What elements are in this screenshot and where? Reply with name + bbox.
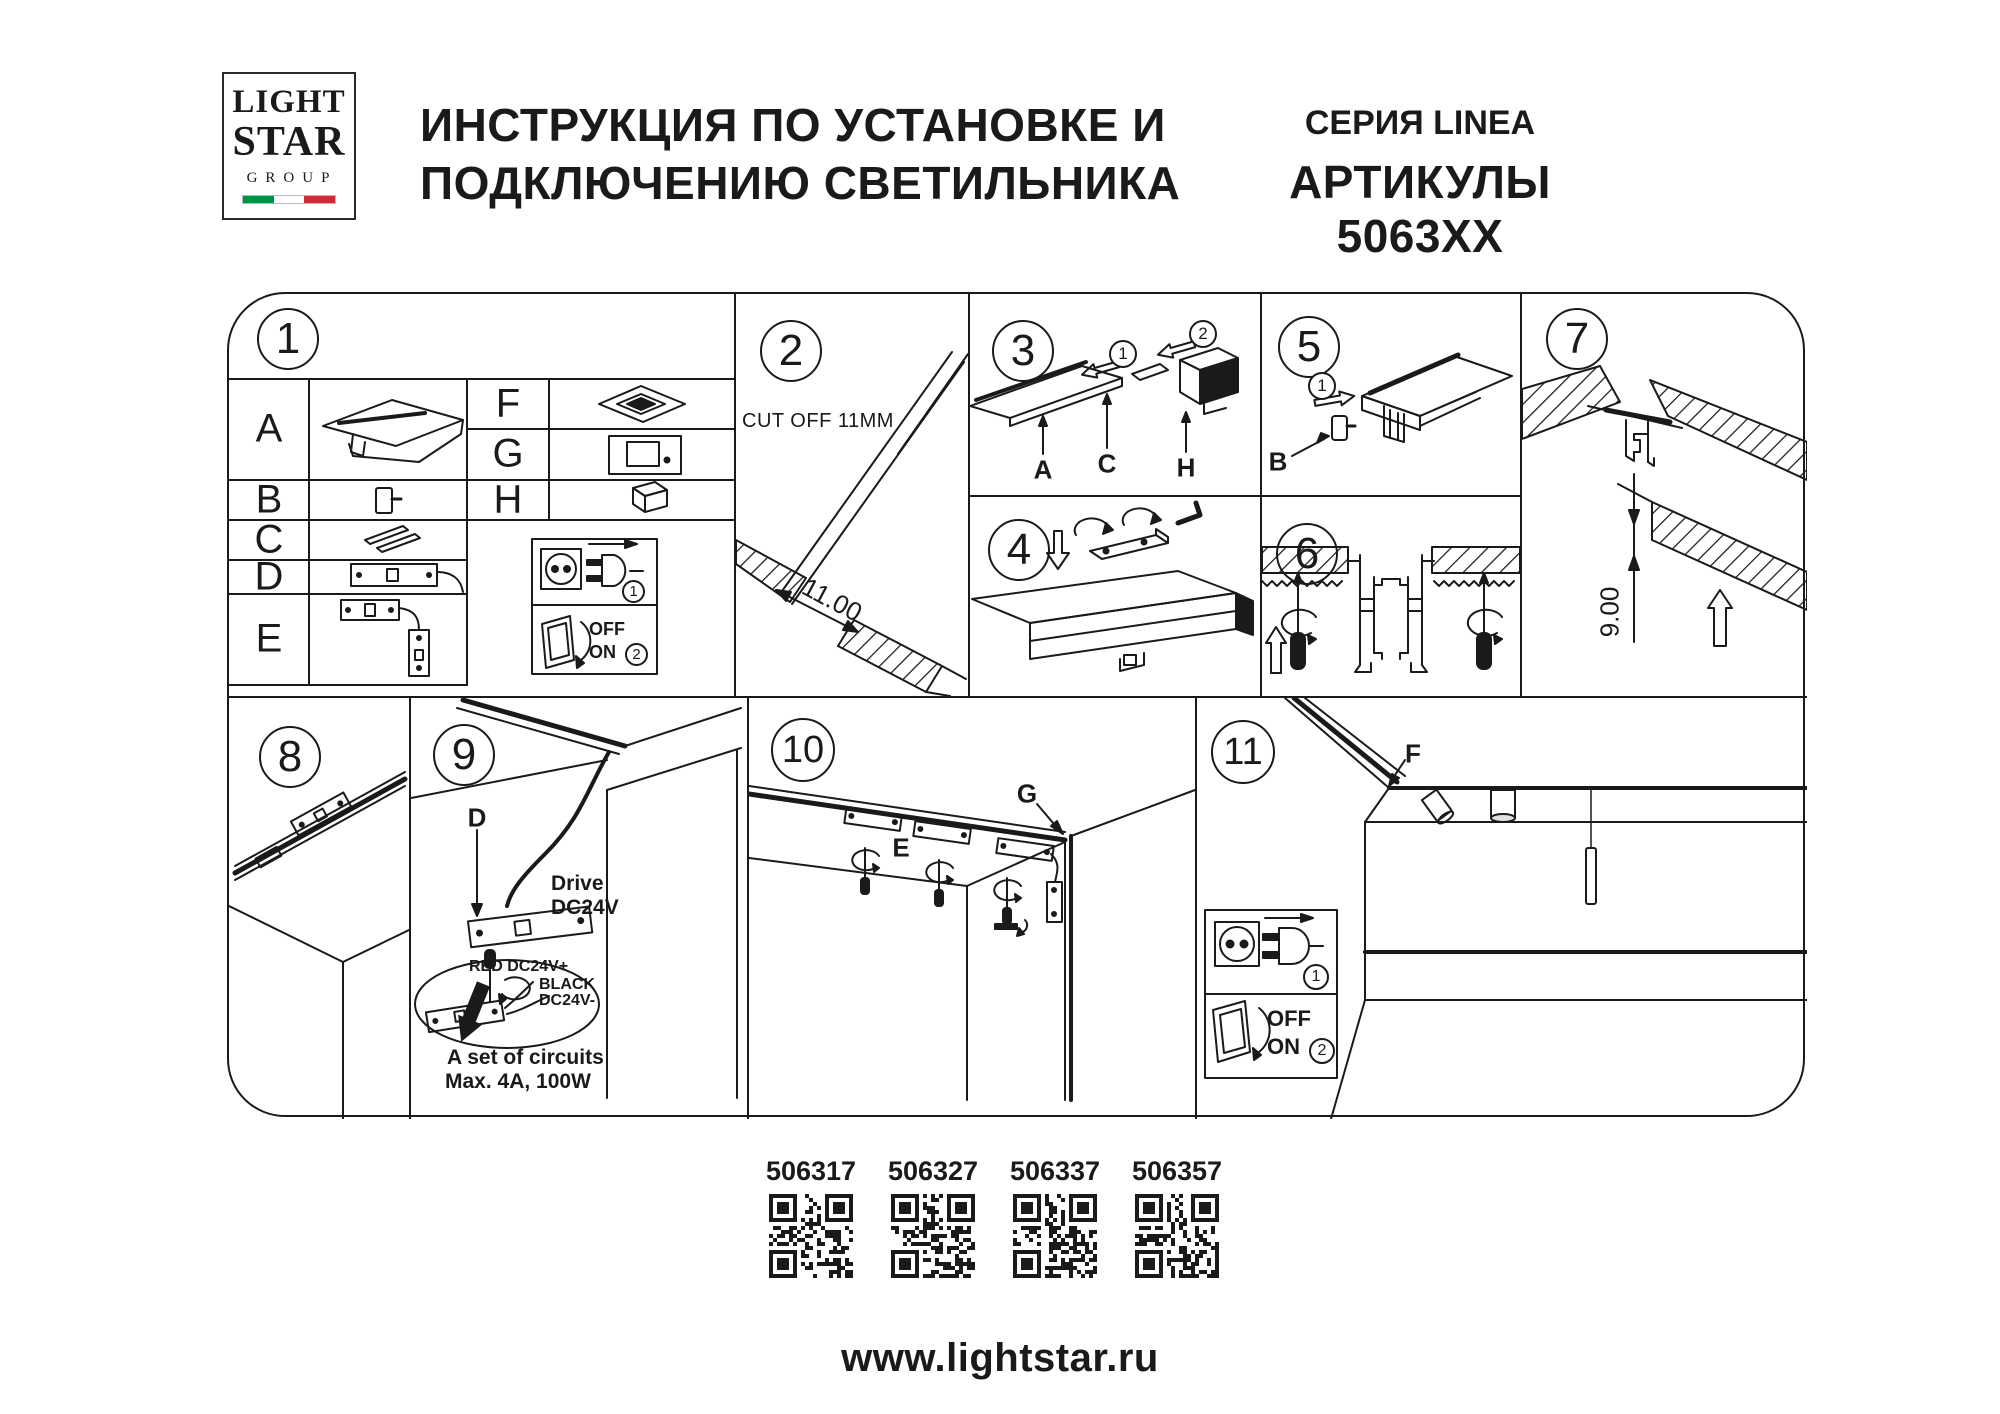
- profile-section-illustration: [1262, 497, 1520, 696]
- circuits-note-line2: Max. 4A, 100W: [445, 1070, 591, 1094]
- step-panel-1: 1: [229, 294, 734, 696]
- series-name: СЕРИЯ LINEA: [1234, 104, 1606, 143]
- qr-code: [1013, 1194, 1097, 1278]
- step-panel-8: 8: [229, 698, 409, 1119]
- step-panel-6: 6: [1262, 497, 1520, 696]
- article-code: 506337: [999, 1156, 1111, 1187]
- part-letter-g: G: [492, 432, 523, 477]
- driver-label-line1: Drive: [551, 872, 604, 896]
- part-label-a: A: [1034, 455, 1053, 486]
- logo-word-star: STAR: [224, 121, 354, 163]
- circuits-note-line1: A set of circuits: [447, 1046, 604, 1070]
- lightstar-logo: LIGHT STAR GROUP: [222, 72, 356, 220]
- logo-word-group: GROUP: [224, 171, 354, 186]
- on-label: ON: [1267, 1036, 1300, 1058]
- cut-off-note: CUT OFF 11MM: [742, 410, 894, 433]
- article-item: 506317: [755, 1156, 867, 1278]
- parts-table-illustration: [229, 294, 734, 696]
- part-letter-b: B: [256, 478, 283, 523]
- qr-code: [891, 1194, 975, 1278]
- step-panel-2: 2 CUT OFF 11MM 11.00: [736, 294, 968, 696]
- article-code: 506357: [1121, 1156, 1233, 1187]
- mounted-profile-illustration: [229, 698, 409, 1119]
- qr-code: [1135, 1194, 1219, 1278]
- part-label-h: H: [1177, 453, 1196, 484]
- off-label: OFF: [589, 620, 625, 638]
- step-panel-5: 5 1 B: [1262, 294, 1520, 495]
- step-panel-3: 3 1 2 A C H: [970, 294, 1260, 495]
- part-letter-h: H: [494, 478, 523, 523]
- step-badge-1: 1: [1308, 372, 1336, 400]
- page-title: ИНСТРУКЦИЯ ПО УСТАНОВКЕ И ПОДКЛЮЧЕНИЮ СВ…: [420, 96, 1180, 212]
- wire-red-label: RED DC24V+: [469, 958, 568, 976]
- part-label-b: B: [1269, 447, 1288, 478]
- part-label-g: G: [1017, 779, 1037, 810]
- step-badge-switch: 2: [1309, 1038, 1335, 1064]
- part-letter-a: A: [256, 407, 283, 452]
- article-code: 506327: [877, 1156, 989, 1187]
- step-panel-4: 4: [970, 497, 1260, 696]
- part-letter-f: F: [496, 382, 520, 427]
- part-label-d: D: [468, 803, 487, 834]
- step-panel-7: 7 9.00: [1522, 294, 1807, 696]
- soffit-drivers-illustration: [749, 698, 1195, 1119]
- article-item: 506337: [999, 1156, 1111, 1278]
- article-item: 506327: [877, 1156, 989, 1278]
- article-item: 506357: [1121, 1156, 1233, 1278]
- clip-fixing-illustration: [970, 497, 1260, 696]
- recess-dimension: 9.00: [1595, 587, 1626, 638]
- part-label-f: F: [1405, 739, 1421, 770]
- step-panel-11: 11: [1197, 698, 1807, 1119]
- off-label: OFF: [1267, 1008, 1311, 1030]
- website-url: www.lightstar.ru: [0, 1336, 2000, 1381]
- recess-depth-illustration: [1522, 294, 1807, 696]
- cut-off-illustration: [736, 294, 968, 696]
- wire-black-label-line2: DC24V-: [539, 992, 595, 1010]
- logo-word-light: LIGHT: [224, 86, 354, 119]
- article-list: 506317 506327 506337 506357: [755, 1156, 1233, 1278]
- part-label-e: E: [892, 833, 909, 864]
- step-panel-9: 9: [411, 698, 747, 1119]
- qr-code: [769, 1194, 853, 1278]
- step-badge-plug: 1: [622, 580, 645, 603]
- articles-heading: АРТИКУЛЫ 5063XX: [1234, 155, 1606, 263]
- step-badge-2: 2: [1189, 320, 1217, 348]
- series-block: СЕРИЯ LINEA АРТИКУЛЫ 5063XX: [1234, 104, 1606, 263]
- page-title-line1: ИНСТРУКЦИЯ ПО УСТАНОВКЕ И: [420, 96, 1180, 154]
- on-label: ON: [589, 643, 616, 661]
- step-badge-1: 1: [1109, 340, 1137, 368]
- driver-label-line2: DC24V: [551, 896, 619, 920]
- instruction-diagram-frame: 1: [227, 292, 1805, 1117]
- italian-flag-icon: [242, 195, 336, 204]
- part-letter-e: E: [256, 617, 283, 662]
- page-title-line2: ПОДКЛЮЧЕНИЮ СВЕТИЛЬНИКА: [420, 154, 1180, 212]
- step-badge-plug: 1: [1303, 964, 1329, 990]
- part-label-c: C: [1098, 449, 1117, 480]
- step-badge-switch: 2: [625, 643, 648, 666]
- step-panel-10: 10 E G: [749, 698, 1195, 1119]
- cap-insert-illustration: [1262, 294, 1520, 495]
- part-letter-d: D: [255, 555, 284, 600]
- article-code: 506317: [755, 1156, 867, 1187]
